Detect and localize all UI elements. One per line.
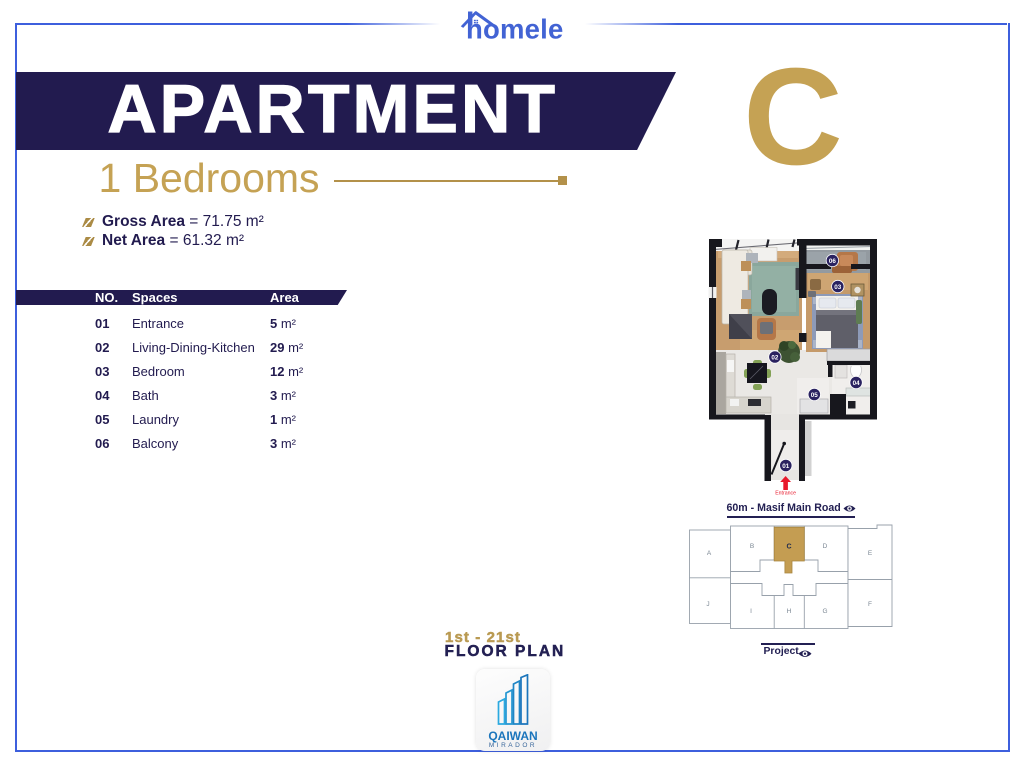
svg-text:Entrance: Entrance [775,491,796,497]
svg-text:01: 01 [782,463,790,470]
svg-text:03: 03 [834,284,842,291]
svg-text:A: A [707,550,712,557]
svg-text:06: 06 [829,258,837,265]
svg-text:J: J [706,601,709,608]
svg-text:H: H [787,608,792,615]
svg-text:F: F [868,601,872,608]
svg-text:G: G [822,608,827,615]
svg-text:E: E [868,550,873,557]
svg-text:B: B [750,543,754,550]
svg-text:C: C [786,544,791,551]
svg-text:02: 02 [771,354,779,361]
svg-text:D: D [823,543,828,550]
svg-text:04: 04 [853,380,861,387]
svg-text:I: I [750,608,752,615]
svg-text:05: 05 [811,392,819,399]
